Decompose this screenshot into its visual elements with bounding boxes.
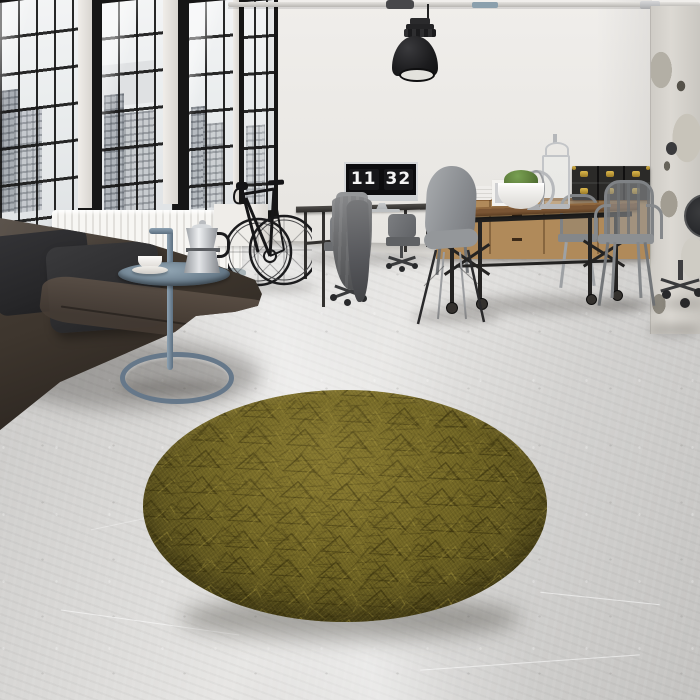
chair-gas-column (678, 260, 683, 280)
caster-wheel (399, 266, 405, 272)
wall-pillar (78, 0, 92, 208)
chair-shadow (598, 300, 658, 310)
shell-chair-seat (423, 228, 478, 250)
chair-leg (611, 242, 617, 298)
espresso-cup (132, 254, 170, 276)
moka-top (186, 228, 218, 250)
side-table-handle (149, 228, 173, 234)
shell-chair (414, 164, 488, 330)
pillar-knob (666, 142, 677, 155)
chair-back (388, 214, 416, 238)
saucer (132, 266, 168, 274)
brass-corner (646, 166, 650, 170)
chair-leg (637, 242, 643, 298)
clock-minutes: 32 (384, 169, 414, 190)
caster-wheel (386, 263, 392, 269)
pendant-lamp (390, 0, 440, 82)
loft-room-photo: 1132 (0, 0, 700, 700)
window-glare (0, 0, 78, 235)
draped-jacket (330, 192, 378, 304)
caster-wheel (662, 290, 671, 299)
lamp-inner-light (399, 68, 435, 82)
cafe-armchair-right (596, 176, 658, 310)
chair-gas-column (400, 246, 403, 258)
moka-bottom (184, 251, 220, 273)
moss-plant (498, 170, 544, 211)
white-bowl (498, 183, 544, 209)
brass-clasp (580, 171, 588, 177)
side-table-stem (167, 230, 173, 370)
chair-base-shadow (662, 300, 700, 308)
shell-chair-shadow (412, 310, 500, 323)
caster-wheel (694, 288, 700, 297)
wall-pillar (163, 0, 178, 204)
office-chair-base (664, 260, 700, 330)
rug-sheen (143, 390, 547, 622)
ceiling-pipe-shadow (228, 7, 700, 9)
chair-leg (598, 242, 610, 306)
round-rug (143, 390, 547, 622)
clock-hours: 11 (349, 169, 379, 190)
chair-leg (644, 242, 656, 306)
brass-corner (572, 166, 576, 170)
moka-pot (184, 220, 228, 274)
pipe-blue-segment (472, 2, 498, 8)
